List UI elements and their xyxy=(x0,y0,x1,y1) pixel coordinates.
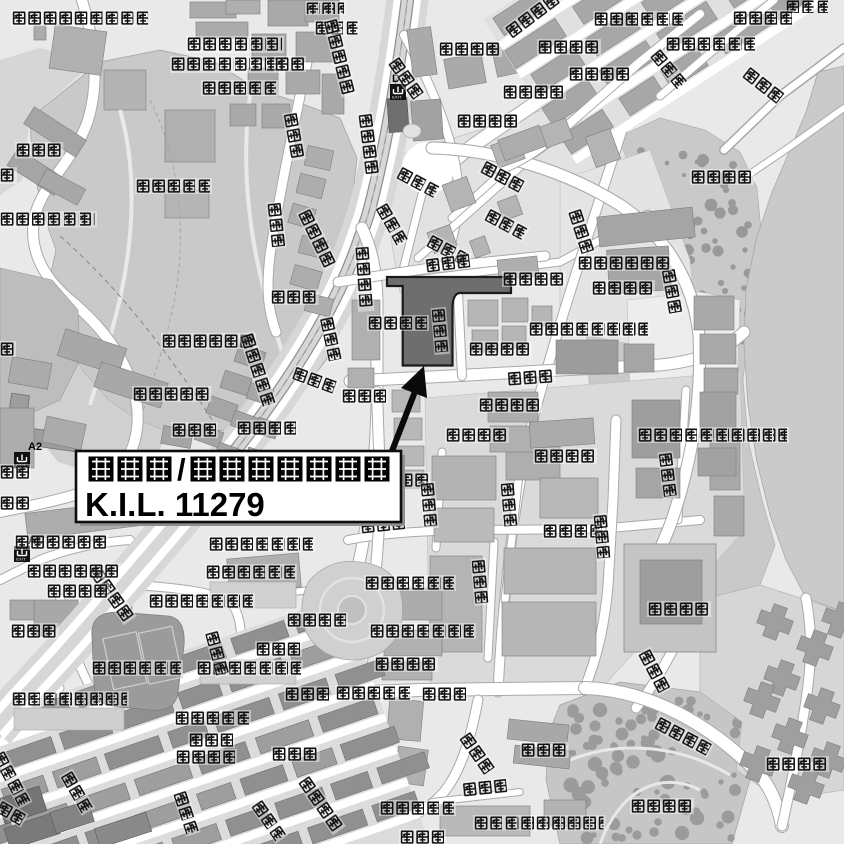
svg-text:EXIT: EXIT xyxy=(16,557,26,561)
svg-text:/: / xyxy=(177,452,186,487)
svg-text:A2: A2 xyxy=(28,441,42,453)
svg-text:EXIT: EXIT xyxy=(392,95,402,99)
svg-text:K.I.L. 11279: K.I.L. 11279 xyxy=(85,486,265,523)
